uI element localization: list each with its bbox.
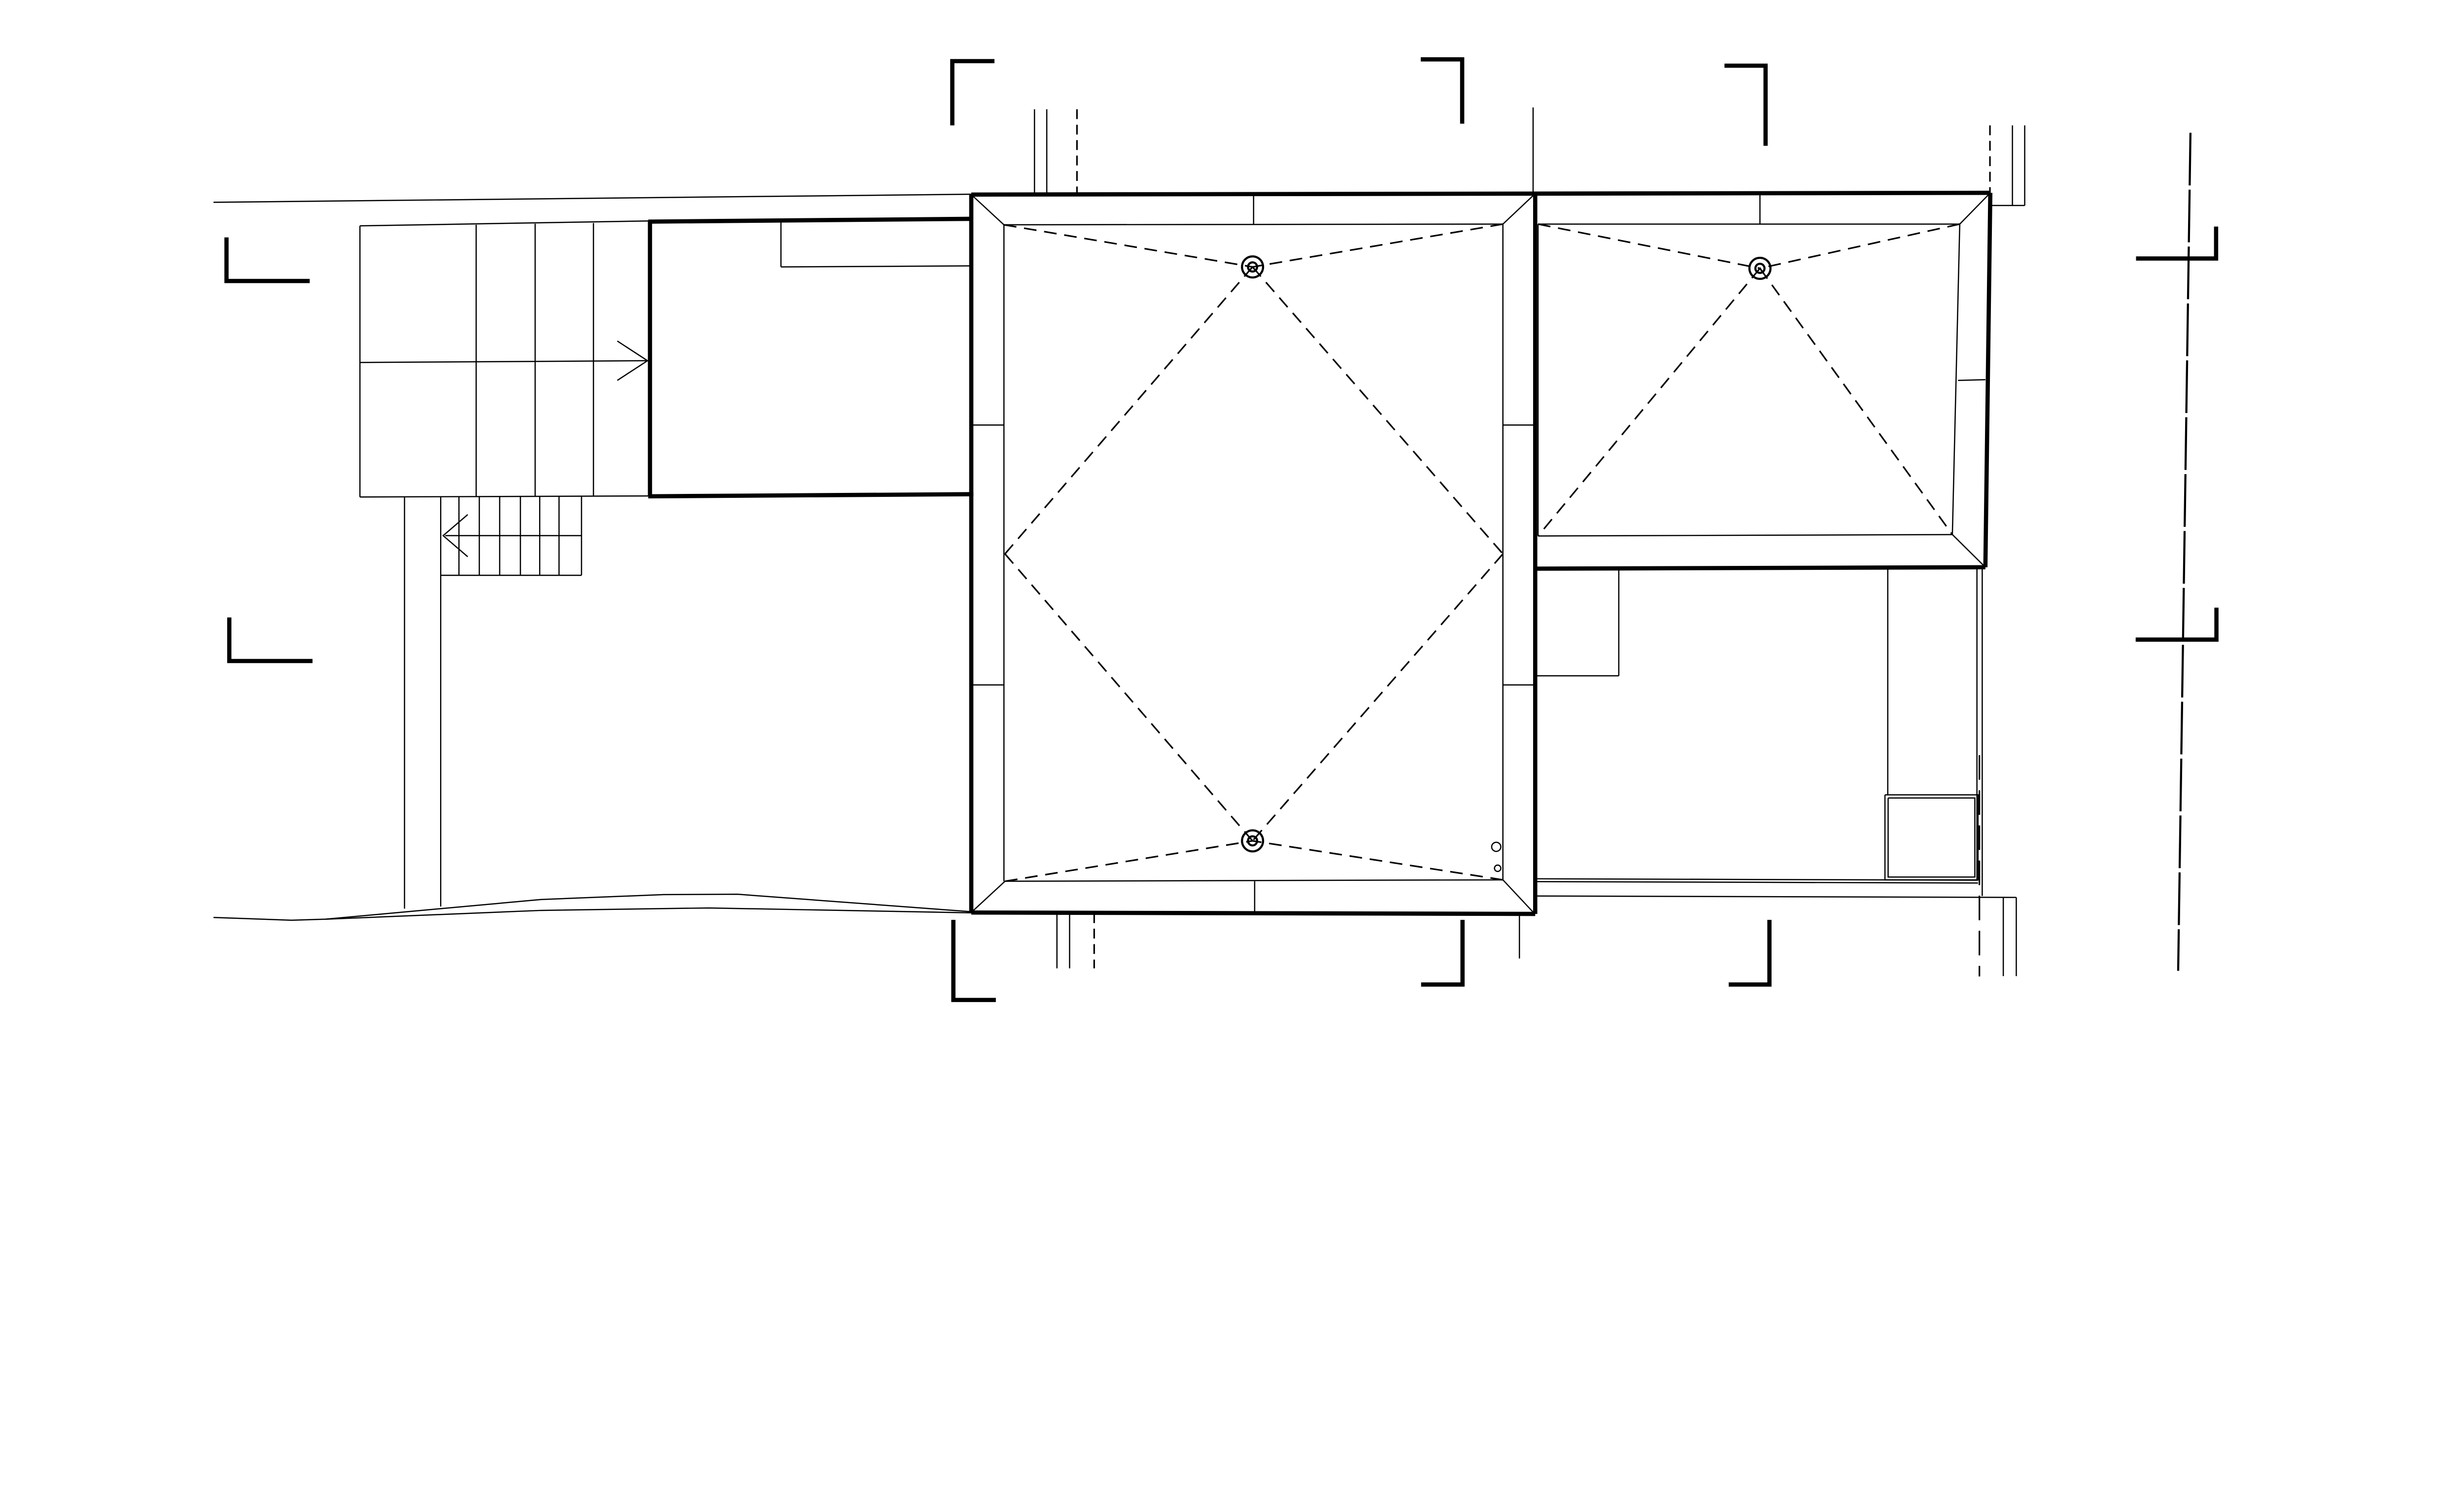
roof-plan-page — [0, 0, 2464, 1067]
right-roof-outer-bottom — [1535, 567, 1985, 569]
center-roof-outer-bottom — [971, 912, 1535, 914]
right-roof-parapet-joint-right — [1958, 380, 1985, 380]
architectural-roof-plan-drawing — [0, 0, 2464, 1067]
thick-room-top-wall — [648, 219, 971, 222]
paper-background — [0, 0, 2464, 1067]
center-roof-outer-top — [971, 193, 1990, 195]
thick-room-bottom-wall — [648, 494, 973, 496]
